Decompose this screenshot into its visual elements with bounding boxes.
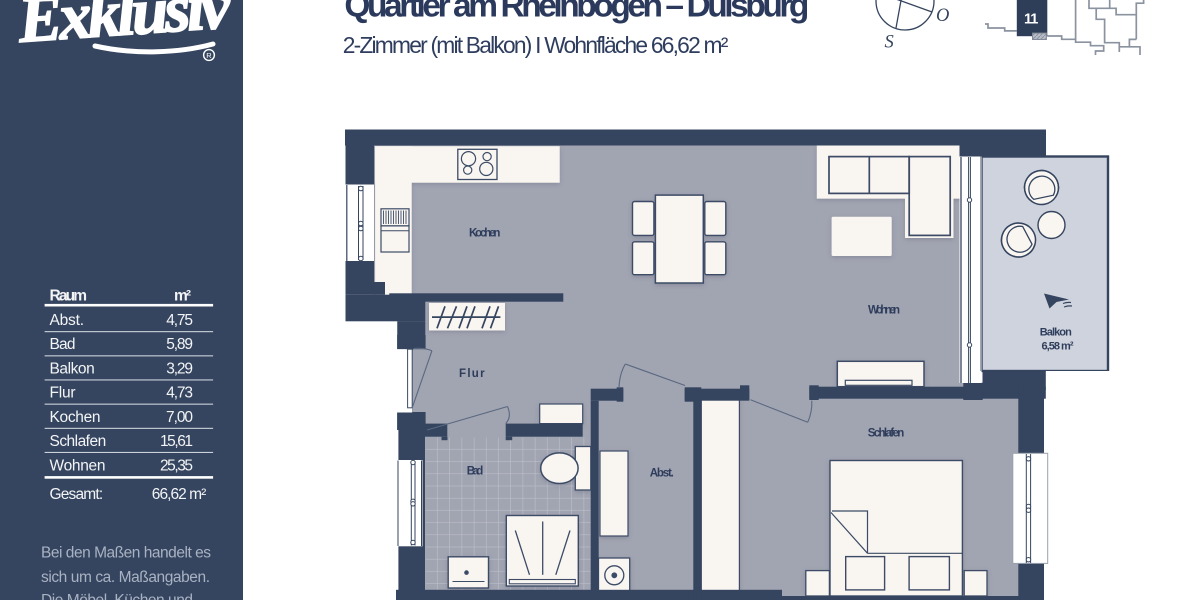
svg-text:2-Zimmer (mit Balkon) I Wohn: 2-Zimmer (mit Balkon) I Wohnfläche 66,62… [343,32,729,58]
svg-text:R: R [206,51,212,60]
svg-text:Raum: Raum [50,288,88,305]
svg-text:Balkon: Balkon [50,361,95,378]
svg-text:Bei den Maßen handelt es: Bei den Maßen handelt es [41,545,211,562]
svg-text:Die Möbel, Küchen und: Die Möbel, Küchen und [41,592,193,600]
svg-text:Gesamt:: Gesamt: [50,486,104,503]
svg-text:S: S [885,33,894,53]
svg-text:O: O [936,6,949,26]
svg-text:Quartier am Rheinbogen – Duisb: Quartier am Rheinbogen – Duisburg [344,0,809,25]
svg-text:7,00: 7,00 [166,409,193,426]
svg-text:Schlafen: Schlafen [50,433,107,450]
svg-text:4,75: 4,75 [166,312,193,329]
svg-text:66,62 m²: 66,62 m² [152,486,207,503]
svg-text:m²: m² [174,288,191,305]
svg-text:11: 11 [1024,11,1038,27]
svg-text:Flur: Flur [50,385,76,402]
svg-text:Bad: Bad [50,336,76,353]
svg-text:Wohnen: Wohnen [50,457,106,474]
svg-text:6,58 m²: 6,58 m² [1042,341,1074,353]
svg-text:4,73: 4,73 [166,385,193,402]
svg-text:Kochen: Kochen [469,227,501,239]
svg-text:25,35: 25,35 [160,457,193,474]
svg-text:Schlafen: Schlafen [868,428,905,440]
svg-text:Bad: Bad [467,466,484,478]
svg-text:sich um ca. Maßangaben.: sich um ca. Maßangaben. [41,569,210,586]
svg-text:Wohnen: Wohnen [868,304,900,316]
svg-text:Flur: Flur [459,368,485,380]
svg-text:Abst.: Abst. [50,312,85,329]
svg-text:Balkon: Balkon [1040,327,1072,339]
svg-text:15,61: 15,61 [160,433,193,450]
svg-text:5,89: 5,89 [166,336,193,353]
svg-text:Kochen: Kochen [50,409,101,426]
svg-text:3,29: 3,29 [166,361,193,378]
svg-text:Abst.: Abst. [650,468,674,480]
